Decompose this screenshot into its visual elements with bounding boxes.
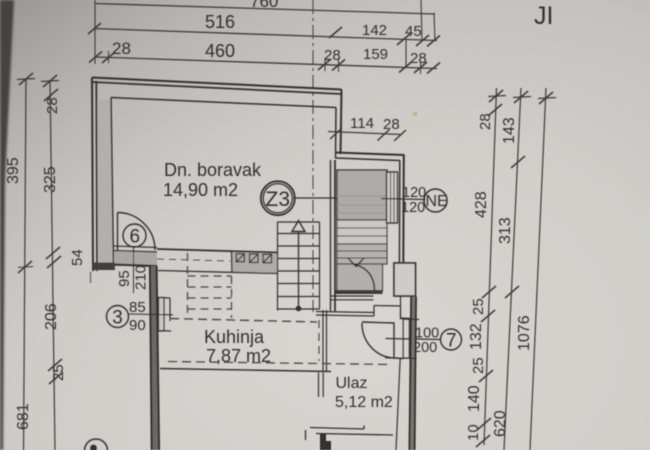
svg-text:620: 620: [492, 410, 509, 437]
svg-text:25: 25: [470, 357, 487, 374]
svg-text:140: 140: [466, 385, 483, 412]
svg-text:28: 28: [410, 50, 427, 67]
svg-text:395: 395: [5, 157, 22, 184]
svg-text:120: 120: [401, 200, 425, 216]
svg-text:85: 85: [129, 299, 146, 316]
svg-text:7: 7: [446, 331, 457, 352]
svg-text:325: 325: [42, 166, 59, 193]
svg-text:25: 25: [50, 364, 67, 381]
svg-text:142: 142: [362, 22, 387, 39]
svg-text:516: 516: [205, 12, 235, 32]
svg-text:JI: JI: [534, 2, 553, 30]
svg-text:5,12 m2: 5,12 m2: [335, 394, 393, 411]
svg-text:681: 681: [15, 403, 32, 430]
svg-text:114: 114: [350, 115, 374, 132]
svg-text:14,90 m2: 14,90 m2: [163, 180, 238, 200]
svg-text:28: 28: [112, 39, 131, 58]
svg-text:313: 313: [497, 217, 514, 244]
svg-text:760: 760: [250, 0, 278, 11]
svg-text:28: 28: [44, 97, 61, 114]
svg-text:210: 210: [133, 265, 150, 290]
svg-text:90: 90: [129, 317, 146, 334]
svg-text:120: 120: [402, 185, 426, 201]
svg-text:28: 28: [383, 116, 400, 133]
svg-text:206: 206: [43, 303, 60, 330]
svg-text:Ulaz: Ulaz: [336, 375, 368, 392]
svg-text:10: 10: [465, 424, 482, 441]
svg-text:159: 159: [363, 46, 388, 63]
svg-text:95: 95: [116, 270, 133, 287]
svg-text:Z3: Z3: [266, 188, 291, 211]
svg-text:25: 25: [470, 298, 487, 315]
svg-text:132: 132: [468, 323, 485, 350]
svg-text:54: 54: [69, 249, 86, 266]
svg-text:1076: 1076: [516, 315, 533, 351]
svg-text:28: 28: [324, 47, 341, 64]
svg-text:3: 3: [112, 308, 123, 329]
svg-text:28: 28: [477, 113, 494, 130]
svg-text:Kuhinja: Kuhinja: [204, 327, 265, 347]
svg-text:NE: NE: [426, 193, 448, 210]
svg-text:143: 143: [501, 117, 518, 144]
svg-text:200: 200: [413, 340, 437, 356]
svg-text:6: 6: [130, 227, 141, 248]
svg-text:Dn. boravak: Dn. boravak: [164, 160, 262, 180]
svg-text:45: 45: [405, 23, 422, 40]
svg-text:428: 428: [473, 191, 490, 218]
svg-text:460: 460: [205, 41, 235, 61]
